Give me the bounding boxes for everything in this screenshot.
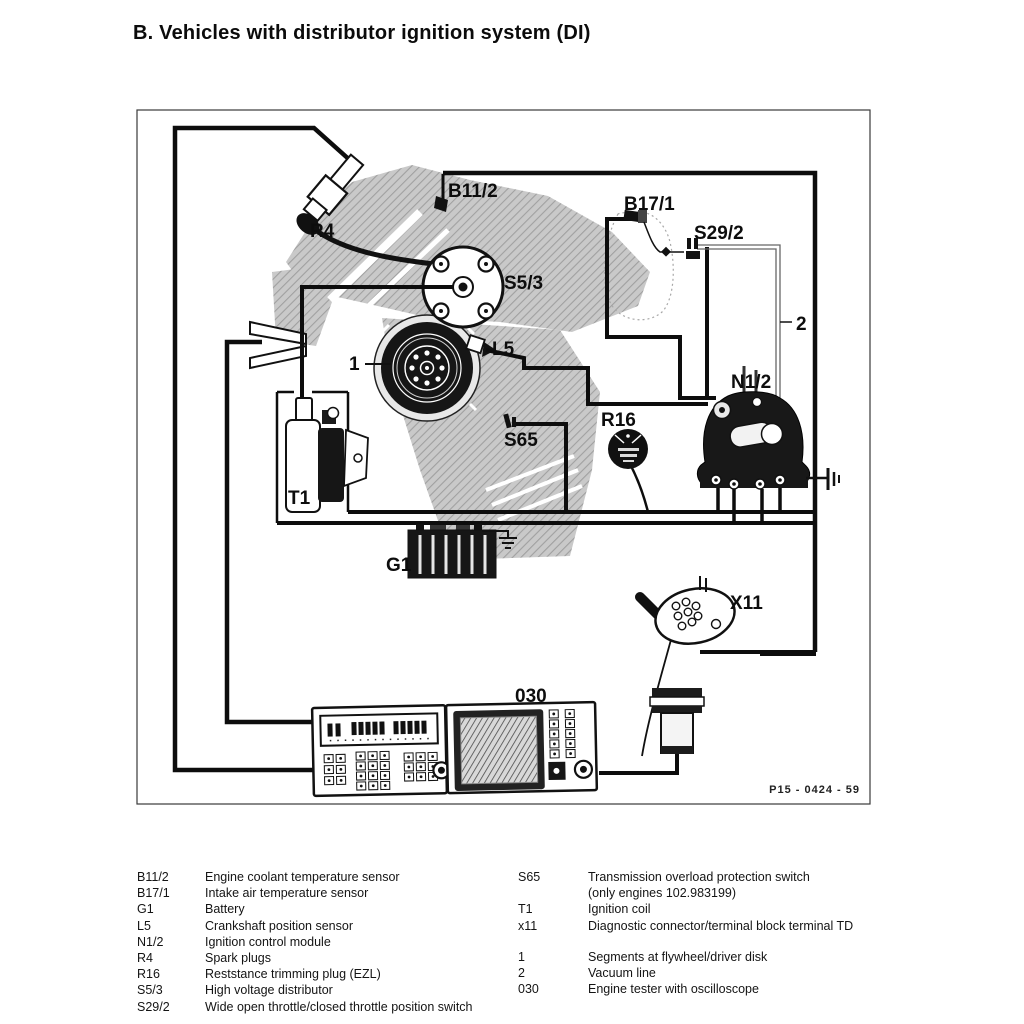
legend-desc: High voltage distributor xyxy=(205,982,509,998)
legend-row: G1Battery xyxy=(137,901,509,917)
legend-code: B11/2 xyxy=(137,869,205,885)
legend-desc: Engine tester with oscilloscope xyxy=(588,981,897,997)
legend-code xyxy=(518,885,588,901)
legend-row: B17/1Intake air temperature sensor xyxy=(137,885,509,901)
label-030: 030 xyxy=(515,686,547,707)
legend-desc: Crankshaft position sensor xyxy=(205,918,509,934)
label-x11: X11 xyxy=(730,593,763,614)
label-g1: G1 xyxy=(386,555,412,576)
oscilloscope-screen xyxy=(460,716,537,784)
legend-code: G1 xyxy=(137,901,205,917)
legend-code: B17/1 xyxy=(137,885,205,901)
legend-code: S65 xyxy=(518,869,588,885)
legend-desc: Diagnostic connector/terminal block term… xyxy=(588,918,897,934)
legend-row: R16Reststance trimming plug (EZL) xyxy=(137,966,509,982)
legend-row: (only engines 102.983199) xyxy=(518,885,897,901)
legend-row: S5/3High voltage distributor xyxy=(137,982,509,998)
legend-desc: Engine coolant temperature sensor xyxy=(205,869,509,885)
label-2: 2 xyxy=(796,314,807,335)
figure-number: P15 - 0424 - 59 xyxy=(720,784,860,796)
legend-desc: Reststance trimming plug (EZL) xyxy=(205,966,509,982)
legend-desc: Battery xyxy=(205,901,509,917)
legend-row: B11/2Engine coolant temperature sensor xyxy=(137,869,509,885)
legend-row: x11Diagnostic connector/terminal block t… xyxy=(518,918,897,934)
legend-code: S29/2 xyxy=(137,999,205,1015)
label-r16: R16 xyxy=(601,410,636,431)
legend-desc: Segments at flywheel/driver disk xyxy=(588,949,897,965)
label-1: 1 xyxy=(349,354,360,375)
legend-row: N1/2Ignition control module xyxy=(137,934,509,950)
ground-symbol xyxy=(806,468,839,490)
legend-code: N1/2 xyxy=(137,934,205,950)
legend-right-column: S65Transmission overload protection swit… xyxy=(518,869,897,997)
legend-row: L5Crankshaft position sensor xyxy=(137,918,509,934)
module-terminal-stubs xyxy=(718,487,780,523)
label-l5: L5 xyxy=(492,339,515,360)
label-s29-2: S29/2 xyxy=(694,223,744,244)
legend-row: R4Spark plugs xyxy=(137,950,509,966)
air-temp-sensor-b17-1 xyxy=(623,210,684,257)
legend-code: T1 xyxy=(518,901,588,917)
legend-row: S65Transmission overload protection swit… xyxy=(518,869,897,885)
legend-row: 030Engine tester with oscilloscope xyxy=(518,981,897,997)
wire-r16 xyxy=(632,468,648,512)
legend-row: S29/2Wide open throttle/closed throttle … xyxy=(137,999,509,1015)
td-adapter-plug xyxy=(650,688,704,754)
legend-row: T1Ignition coil xyxy=(518,901,897,917)
legend-desc: Intake air temperature sensor xyxy=(205,885,509,901)
legend-desc: Ignition coil xyxy=(588,901,897,917)
label-b11-2: B11/2 xyxy=(448,181,498,202)
label-s5-3: S5/3 xyxy=(504,273,543,294)
label-b17-1: B17/1 xyxy=(624,194,675,215)
legend-desc: Ignition control module xyxy=(205,934,509,950)
legend-desc: Vacuum line xyxy=(588,965,897,981)
legend-desc: (only engines 102.983199) xyxy=(588,885,897,901)
engine-tester-030 xyxy=(312,702,597,796)
legend-left-column: B11/2Engine coolant temperature sensor B… xyxy=(137,869,509,1015)
legend-code: S5/3 xyxy=(137,982,205,998)
legend-desc: Transmission overload protection switch xyxy=(588,869,897,885)
legend-desc: Wide open throttle/closed throttle posit… xyxy=(205,999,509,1015)
legend-code: 030 xyxy=(518,981,588,997)
legend-code: 2 xyxy=(518,965,588,981)
legend-code: 1 xyxy=(518,949,588,965)
label-s65: S65 xyxy=(504,430,538,451)
page-title: B. Vehicles with distributor ignition sy… xyxy=(133,22,591,45)
wire-x11 xyxy=(700,652,816,654)
label-r4: R4 xyxy=(310,221,335,242)
label-t1: T1 xyxy=(288,488,311,509)
legend-row: 1Segments at flywheel/driver disk xyxy=(518,949,897,965)
legend-code: L5 xyxy=(137,918,205,934)
legend-desc: Spark plugs xyxy=(205,950,509,966)
legend-code: R16 xyxy=(137,966,205,982)
legend-code: R4 xyxy=(137,950,205,966)
manual-page: B. Vehicles with distributor ignition sy… xyxy=(0,0,1024,1024)
label-n1-2: N1/2 xyxy=(731,372,771,393)
trimming-plug-r16 xyxy=(608,429,648,469)
legend-code: x11 xyxy=(518,918,588,934)
wire-td-adapter xyxy=(599,754,677,773)
legend-row: 2Vacuum line xyxy=(518,965,897,981)
